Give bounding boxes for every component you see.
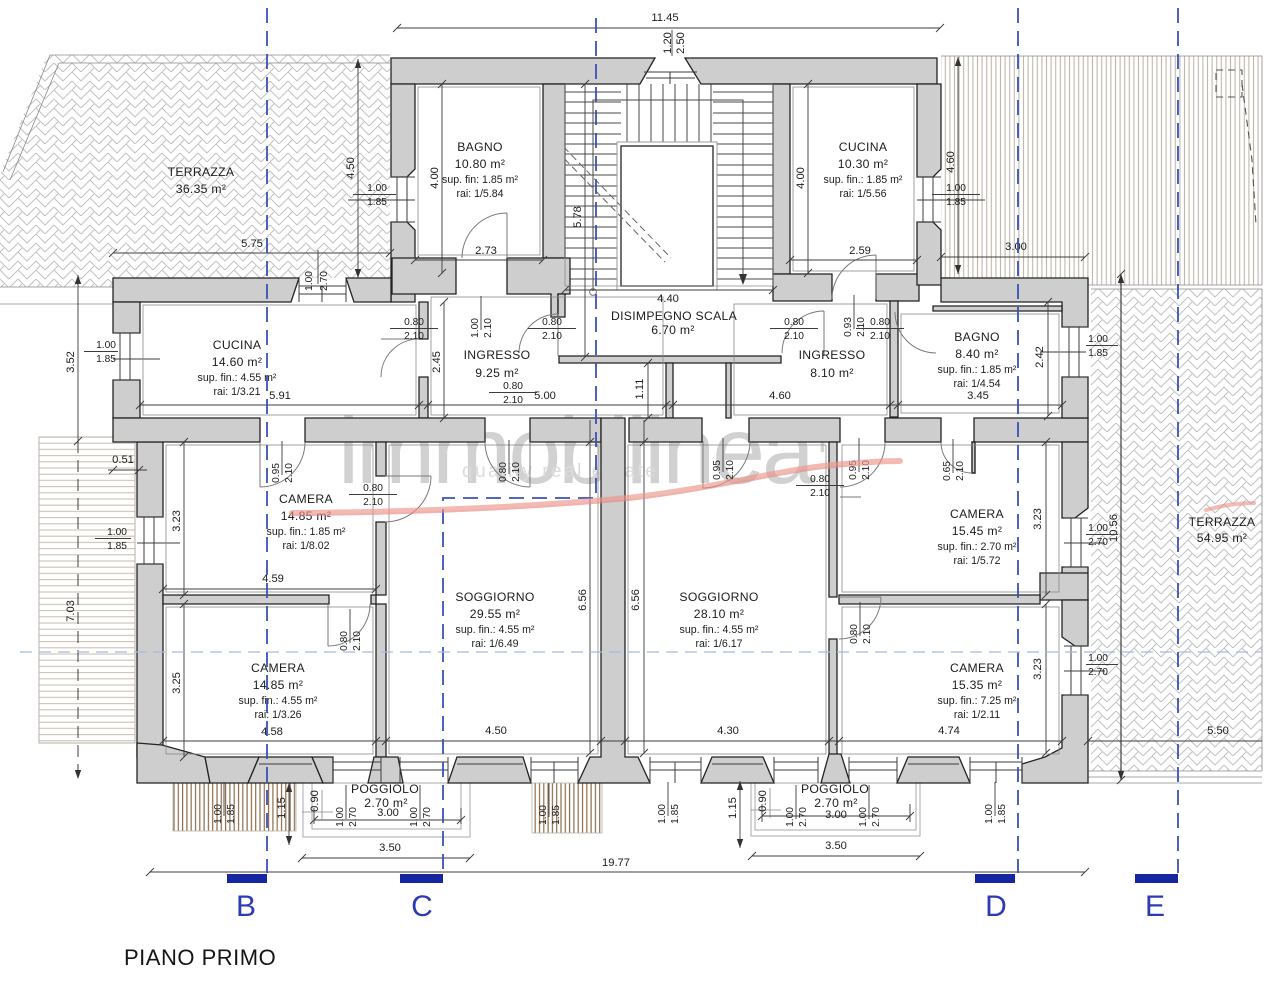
svg-text:2.70: 2.70	[1088, 667, 1108, 678]
svg-text:2.70: 2.70	[871, 807, 882, 827]
svg-text:1.15: 1.15	[276, 797, 288, 819]
svg-text:CAMERA: CAMERA	[950, 661, 1005, 675]
svg-text:19.77: 19.77	[602, 857, 630, 869]
svg-text:CAMERA: CAMERA	[950, 507, 1005, 521]
svg-text:1.85: 1.85	[107, 541, 127, 552]
svg-text:2.73: 2.73	[475, 245, 497, 257]
svg-text:1.00: 1.00	[335, 807, 346, 827]
svg-text:2.10: 2.10	[503, 395, 523, 406]
svg-text:15.45 m²: 15.45 m²	[952, 524, 1003, 538]
svg-text:E: E	[1145, 890, 1165, 923]
svg-text:rai: 1/5.84: rai: 1/5.84	[456, 188, 503, 200]
svg-text:sup. fin.: 1.85 m²: sup. fin.: 1.85 m²	[938, 364, 1017, 376]
svg-text:POGGIOLO: POGGIOLO	[801, 782, 869, 796]
svg-text:3.00: 3.00	[825, 809, 847, 821]
svg-text:1.85: 1.85	[226, 804, 237, 824]
svg-text:2.70: 2.70	[422, 807, 433, 827]
svg-text:1.00: 1.00	[946, 183, 966, 194]
svg-text:8.10 m²: 8.10 m²	[810, 366, 853, 380]
svg-text:3.45: 3.45	[967, 390, 989, 402]
svg-text:2.45: 2.45	[431, 351, 443, 373]
svg-text:0.90: 0.90	[757, 790, 769, 812]
svg-text:CAMERA: CAMERA	[279, 492, 334, 506]
svg-text:5.91: 5.91	[269, 390, 291, 402]
svg-text:2.10: 2.10	[511, 462, 522, 482]
svg-text:TERRAZZA: TERRAZZA	[168, 165, 235, 179]
svg-text:6.56: 6.56	[630, 589, 642, 611]
svg-text:sup. fin.: 4.55 m²: sup. fin.: 4.55 m²	[239, 695, 318, 707]
svg-text:rai: 1/5.56: rai: 1/5.56	[839, 188, 886, 200]
svg-text:2.50: 2.50	[675, 32, 687, 54]
svg-text:0.80: 0.80	[363, 483, 383, 494]
svg-text:1.85: 1.85	[670, 804, 681, 824]
svg-text:1.00: 1.00	[1088, 523, 1108, 534]
svg-text:DISIMPEGNO SCALA: DISIMPEGNO SCALA	[611, 309, 738, 323]
svg-text:sup. fin.: 7.25 m²: sup. fin.: 7.25 m²	[938, 695, 1017, 707]
svg-text:rai: 1/5.72: rai: 1/5.72	[953, 555, 1000, 567]
svg-text:4.00: 4.00	[429, 167, 441, 189]
svg-text:CAMERA: CAMERA	[251, 661, 306, 675]
svg-text:rai: 1/6.49: rai: 1/6.49	[471, 638, 518, 650]
svg-text:4.50: 4.50	[345, 157, 357, 179]
svg-text:SOGGIORNO: SOGGIORNO	[679, 590, 758, 604]
svg-text:sup. fin.: 1.85 m²: sup. fin.: 1.85 m²	[267, 526, 346, 538]
svg-text:1.00: 1.00	[538, 805, 549, 825]
svg-text:2.10: 2.10	[363, 497, 383, 508]
svg-text:2.10: 2.10	[870, 331, 890, 342]
svg-text:1.85: 1.85	[551, 805, 562, 825]
svg-text:2.10: 2.10	[404, 331, 424, 342]
svg-text:rai: 1/2.11: rai: 1/2.11	[954, 709, 1000, 721]
svg-text:4.50: 4.50	[485, 725, 507, 737]
svg-text:54.95 m²: 54.95 m²	[1197, 531, 1248, 545]
svg-text:CUCINA: CUCINA	[839, 140, 888, 154]
svg-text:TERRAZZA: TERRAZZA	[1189, 515, 1256, 529]
svg-text:4.60: 4.60	[769, 390, 791, 402]
svg-text:0.65: 0.65	[942, 461, 953, 481]
svg-text:CUCINA: CUCINA	[213, 338, 262, 352]
svg-text:0.51: 0.51	[112, 454, 134, 466]
svg-text:4.58: 4.58	[261, 726, 283, 738]
svg-text:3.23: 3.23	[1032, 508, 1044, 530]
svg-text:BAGNO: BAGNO	[954, 330, 1000, 344]
svg-text:5.78: 5.78	[572, 206, 584, 228]
svg-text:5.00: 5.00	[534, 390, 556, 402]
svg-text:4.60: 4.60	[945, 151, 957, 173]
svg-text:1.00: 1.00	[858, 807, 869, 827]
svg-text:1.00: 1.00	[409, 807, 420, 827]
svg-text:0.90: 0.90	[309, 790, 321, 812]
svg-text:14.60 m²: 14.60 m²	[212, 355, 263, 369]
svg-text:11.45: 11.45	[651, 12, 678, 24]
svg-text:INGRESSO: INGRESSO	[464, 348, 531, 362]
svg-text:1.00: 1.00	[657, 804, 668, 824]
svg-text:1.85: 1.85	[946, 197, 966, 208]
svg-text:1.20: 1.20	[662, 32, 674, 54]
svg-text:SOGGIORNO: SOGGIORNO	[455, 590, 534, 604]
svg-text:4.40: 4.40	[657, 293, 679, 305]
svg-text:3.00: 3.00	[1005, 241, 1027, 253]
svg-text:2.10: 2.10	[856, 317, 867, 337]
svg-text:2.70: 2.70	[319, 271, 330, 291]
svg-text:28.10 m²: 28.10 m²	[694, 607, 745, 621]
svg-text:0.95: 0.95	[271, 463, 282, 483]
svg-text:0.80: 0.80	[849, 624, 860, 644]
svg-text:sup. fin.: 1.85 m²: sup. fin.: 1.85 m²	[824, 174, 903, 186]
svg-text:sup. fin: 1.85 m²: sup. fin: 1.85 m²	[442, 174, 518, 186]
svg-text:2.10: 2.10	[862, 624, 873, 644]
svg-text:3.23: 3.23	[1032, 658, 1044, 680]
svg-text:0.80: 0.80	[784, 317, 804, 328]
svg-text:15.35 m²: 15.35 m²	[952, 678, 1003, 692]
svg-text:1.11: 1.11	[634, 379, 646, 400]
svg-text:10.80 m²: 10.80 m²	[455, 157, 506, 171]
svg-text:1.00: 1.00	[96, 340, 116, 351]
svg-text:sup. fin.: 4.55 m²: sup. fin.: 4.55 m²	[456, 624, 535, 636]
svg-text:0.93: 0.93	[843, 317, 854, 337]
svg-text:4.74: 4.74	[938, 725, 960, 737]
svg-text:29.55 m²: 29.55 m²	[470, 607, 521, 621]
svg-text:3.25: 3.25	[171, 672, 183, 694]
svg-text:2.10: 2.10	[542, 331, 562, 342]
svg-text:2.70: 2.70	[798, 807, 809, 827]
svg-text:2.10: 2.10	[483, 318, 494, 338]
svg-text:36.35 m²: 36.35 m²	[176, 182, 227, 196]
svg-text:0.80: 0.80	[810, 474, 830, 485]
svg-text:rai: 1/4.54: rai: 1/4.54	[953, 378, 1000, 390]
svg-text:2.70: 2.70	[1088, 537, 1108, 548]
svg-text:1.00: 1.00	[785, 807, 796, 827]
svg-text:1.85: 1.85	[96, 354, 116, 365]
svg-text:1.00: 1.00	[1088, 653, 1108, 664]
svg-text:5.50: 5.50	[1207, 725, 1229, 737]
svg-text:0.80: 0.80	[870, 317, 890, 328]
svg-text:2.10: 2.10	[352, 631, 363, 651]
svg-text:3.50: 3.50	[825, 840, 847, 852]
svg-text:1.15: 1.15	[727, 797, 739, 819]
svg-text:rai: 1/3.26: rai: 1/3.26	[254, 709, 301, 721]
svg-text:2.10: 2.10	[955, 461, 966, 481]
svg-text:4.59: 4.59	[262, 573, 284, 585]
svg-text:BAGNO: BAGNO	[457, 140, 503, 154]
svg-text:0.80: 0.80	[498, 462, 509, 482]
svg-text:PIANO PRIMO: PIANO PRIMO	[124, 945, 276, 970]
svg-text:1.00: 1.00	[107, 527, 127, 538]
svg-text:3.00: 3.00	[377, 807, 399, 819]
svg-text:sup. fin.: 2.70 m²: sup. fin.: 2.70 m²	[938, 541, 1017, 553]
svg-text:1.00: 1.00	[367, 183, 387, 194]
svg-text:0.95: 0.95	[712, 460, 723, 480]
svg-text:3.23: 3.23	[171, 510, 183, 532]
svg-text:6.70 m²: 6.70 m²	[651, 323, 694, 337]
svg-text:sup. fin.: 4.55 m²: sup. fin.: 4.55 m²	[680, 624, 759, 636]
svg-text:0.80: 0.80	[542, 317, 562, 328]
svg-text:2.10: 2.10	[784, 331, 804, 342]
svg-text:D: D	[985, 890, 1007, 923]
svg-text:1.85: 1.85	[367, 197, 387, 208]
svg-text:INGRESSO: INGRESSO	[799, 348, 866, 362]
svg-text:1.00: 1.00	[984, 804, 995, 824]
svg-text:1.00: 1.00	[1088, 334, 1108, 345]
svg-text:14.85 m²: 14.85 m²	[253, 678, 304, 692]
svg-text:6.56: 6.56	[577, 589, 589, 611]
svg-text:1.00: 1.00	[470, 318, 481, 338]
svg-text:2.10: 2.10	[810, 488, 830, 499]
svg-text:9.25 m²: 9.25 m²	[475, 366, 518, 380]
svg-text:3.50: 3.50	[379, 842, 401, 854]
svg-text:2.42: 2.42	[1034, 346, 1046, 368]
svg-text:sup. fin.: 4.55 m²: sup. fin.: 4.55 m²	[198, 372, 277, 384]
svg-text:4.00: 4.00	[795, 167, 807, 189]
svg-text:1.85: 1.85	[997, 804, 1008, 824]
svg-text:2.70: 2.70	[348, 807, 359, 827]
svg-text:immobilinea: immobilinea	[338, 398, 815, 504]
svg-text:C: C	[411, 890, 433, 923]
svg-text:2.10: 2.10	[284, 463, 295, 483]
svg-text:5.75: 5.75	[241, 238, 263, 250]
svg-text:8.40 m²: 8.40 m²	[955, 347, 998, 361]
svg-text:rai: 1/3.21: rai: 1/3.21	[213, 386, 260, 398]
svg-text:0.80: 0.80	[404, 317, 424, 328]
svg-text:0.80: 0.80	[503, 381, 523, 392]
svg-text:rai: 1/6.17: rai: 1/6.17	[695, 638, 742, 650]
svg-text:1.00: 1.00	[304, 271, 315, 291]
svg-text:B: B	[236, 890, 256, 923]
svg-text:10.30 m²: 10.30 m²	[838, 157, 889, 171]
svg-text:2.59: 2.59	[849, 245, 871, 257]
svg-text:rai: 1/8.02: rai: 1/8.02	[282, 540, 329, 552]
svg-text:1.85: 1.85	[1088, 348, 1108, 359]
svg-text:2.70 m²: 2.70 m²	[814, 796, 857, 810]
svg-text:0.80: 0.80	[339, 631, 350, 651]
svg-text:1.00: 1.00	[213, 804, 224, 824]
svg-text:3.52: 3.52	[65, 351, 77, 373]
svg-text:quality real estate: quality real estate	[462, 461, 658, 482]
svg-text:10.56: 10.56	[1108, 514, 1120, 542]
svg-text:2.10: 2.10	[725, 460, 736, 480]
svg-text:POGGIOLO: POGGIOLO	[351, 782, 419, 796]
svg-text:7.03: 7.03	[65, 600, 77, 622]
svg-text:4.30: 4.30	[717, 725, 739, 737]
